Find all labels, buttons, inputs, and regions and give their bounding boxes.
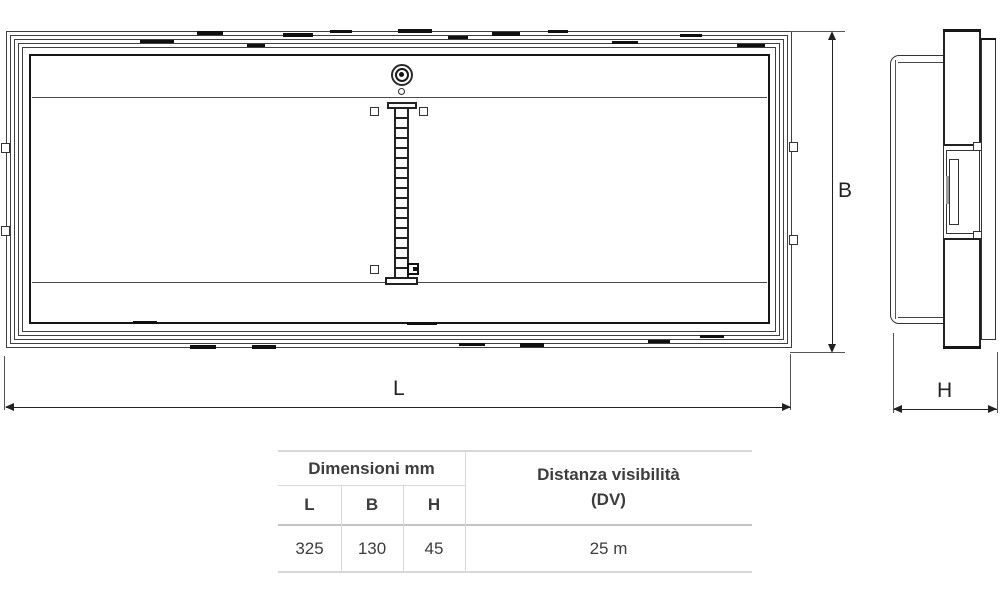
frame-detail bbox=[520, 343, 544, 347]
frame-detail bbox=[197, 31, 223, 35]
frame-detail bbox=[700, 335, 724, 338]
side-lip-top bbox=[898, 62, 943, 63]
mount-square-top-right bbox=[419, 107, 428, 116]
mount-square-fill bbox=[413, 267, 417, 271]
frame-detail bbox=[133, 321, 157, 324]
table-header-dimensions: Dimensioni mm bbox=[278, 452, 465, 485]
side-back-plate bbox=[890, 55, 944, 324]
arrowhead-up-icon bbox=[828, 31, 836, 40]
small-hole-icon bbox=[398, 88, 405, 95]
chain-top-cap bbox=[387, 102, 417, 109]
mount-square-top-left bbox=[370, 107, 379, 116]
table-value-L: 325 bbox=[278, 526, 341, 571]
ext-line bbox=[997, 352, 998, 413]
ext-line bbox=[790, 352, 845, 353]
ext-line bbox=[790, 354, 791, 410]
arrowhead-left-icon bbox=[5, 403, 14, 411]
mount-square-bottom-left bbox=[370, 265, 379, 274]
table-header-visibility: Distanza visibilità (DV) bbox=[465, 452, 752, 524]
clip-right-lower bbox=[789, 235, 798, 245]
front-face-upper-line bbox=[32, 97, 767, 98]
side-cover-bottom-edge bbox=[943, 346, 981, 349]
frame-detail bbox=[140, 40, 174, 43]
side-cover-bottom-panel bbox=[943, 238, 981, 349]
arrowhead-right-icon bbox=[782, 403, 791, 411]
arrowhead-right-icon bbox=[988, 405, 997, 413]
visibility-header-line2: (DV) bbox=[591, 488, 626, 513]
frame-detail bbox=[548, 30, 568, 33]
table-col-header-L: L bbox=[278, 486, 341, 524]
frame-detail bbox=[492, 32, 520, 36]
table-col-header-H: H bbox=[403, 486, 465, 524]
dim-label-B: B bbox=[838, 179, 852, 203]
frame-detail bbox=[247, 44, 265, 47]
clip-right-upper bbox=[789, 142, 798, 152]
dim-line bbox=[6, 407, 791, 408]
frame-detail bbox=[283, 33, 313, 37]
table-value-H: 45 bbox=[403, 526, 465, 571]
table-col-header-B: B bbox=[341, 486, 403, 524]
visibility-header-line1: Distanza visibilità bbox=[537, 463, 680, 488]
frame-detail bbox=[252, 345, 276, 349]
frame-detail bbox=[612, 41, 638, 44]
arrowhead-left-icon bbox=[893, 405, 902, 413]
frame-detail bbox=[407, 322, 437, 325]
side-recess-shading bbox=[946, 176, 949, 204]
chain-bottom-cap bbox=[385, 277, 418, 285]
frame-detail bbox=[737, 44, 765, 47]
dim-line bbox=[894, 409, 997, 410]
side-recess-insert bbox=[949, 159, 959, 225]
technical-drawing-sheet: B L H bbox=[0, 0, 1000, 600]
side-cover-top-edge bbox=[943, 29, 981, 32]
table-bottom-border bbox=[278, 571, 752, 573]
dim-label-H: H bbox=[937, 379, 952, 403]
frame-detail bbox=[448, 36, 468, 39]
ext-line bbox=[790, 31, 845, 32]
frame-detail bbox=[459, 343, 485, 346]
frame-detail bbox=[190, 345, 216, 349]
arrowhead-down-icon bbox=[828, 344, 836, 353]
side-back-plate-inner-line bbox=[895, 60, 896, 319]
side-front-strip-top-edge bbox=[981, 38, 996, 40]
side-lip-bottom bbox=[898, 317, 943, 318]
frame-detail bbox=[398, 29, 432, 33]
ext-line bbox=[4, 356, 5, 410]
cable-chain bbox=[394, 109, 409, 278]
table-value-DV: 25 m bbox=[465, 526, 752, 571]
frame-detail bbox=[648, 340, 670, 343]
screw-slot-icon bbox=[399, 72, 404, 77]
dim-label-L: L bbox=[393, 377, 405, 401]
frame-detail bbox=[330, 30, 352, 33]
dim-line bbox=[832, 33, 833, 351]
ext-line bbox=[893, 333, 894, 413]
side-cover-top-panel bbox=[943, 29, 981, 146]
side-front-strip bbox=[981, 38, 996, 340]
clip-left-lower bbox=[1, 226, 10, 236]
table-value-B: 130 bbox=[341, 526, 403, 571]
frame-detail bbox=[680, 34, 702, 37]
clip-left-upper bbox=[1, 143, 10, 153]
